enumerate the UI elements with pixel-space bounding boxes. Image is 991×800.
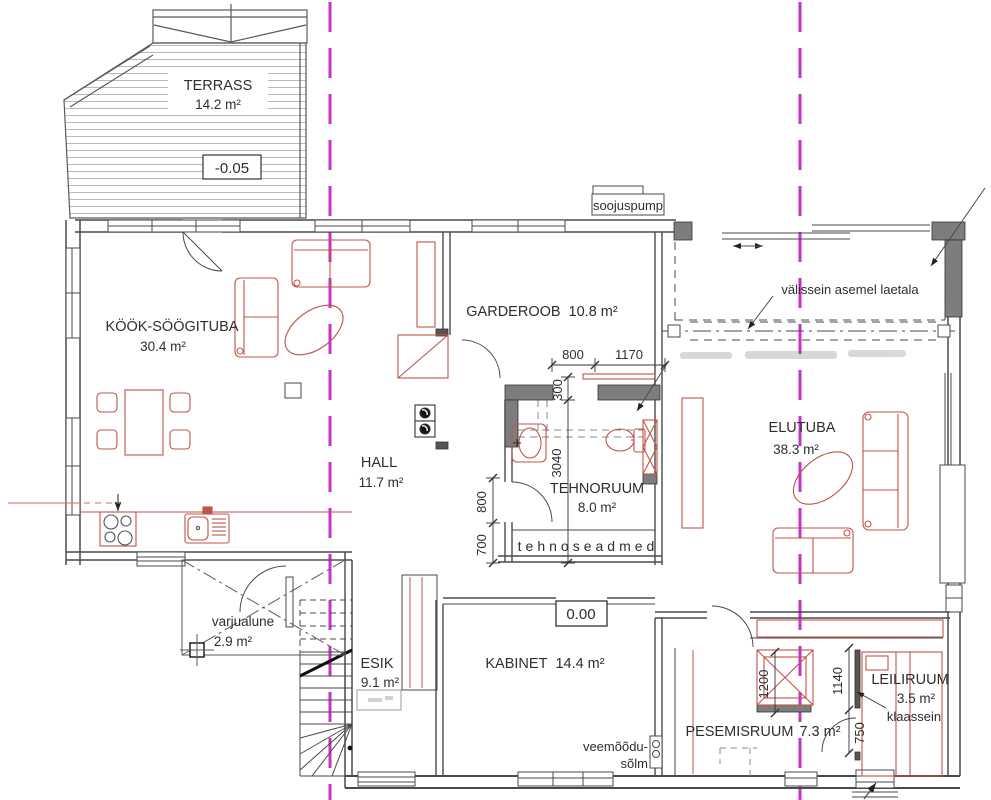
label-esik-area: 9.1 m² [361,675,400,690]
wc-toilet [606,429,645,452]
floor-plan-page: TERRASS 14.2 m² -0.05 soojuspump KÖÖK-SÖ… [0,0,991,800]
dim-label-1140: 1140 [830,667,845,695]
window-top-2 [315,220,410,232]
illegible-label-box [357,690,401,710]
sliding-door-panels [722,225,930,246]
sofa-right [863,412,908,530]
garderoob-shelf [583,374,655,379]
window-under-counter [137,552,185,566]
glass-wall-klaassein [855,650,860,708]
door-pesemisruum [712,606,753,647]
esik-wardrobe [402,575,437,690]
spotlight-symbols [415,405,435,437]
chair [170,430,190,449]
beam-anchor-right [938,325,950,337]
label-valissein: välissein asemel laetala [781,282,919,297]
wall-wc-left-top [505,385,553,400]
window-left-1 [66,248,80,338]
label-garderoob: GARDEROOB10.8 m² [466,304,618,320]
label-kook-area: 30.4 m² [140,339,186,354]
terrace-deck [64,43,306,218]
label-veemoodu-1: veemõõdu- [583,739,648,754]
door-tehnoruum [512,482,552,522]
dim-label-750: 750 [852,722,867,744]
label-soojuspump: soojuspump [593,198,663,213]
dining-table [125,390,163,455]
leader-laetala [748,296,773,329]
hall-hatch-bottom [436,442,448,449]
wall-wc-right [598,385,660,400]
dim-label-3040: 3040 [549,449,564,478]
label-varjualune: varjualune [212,614,274,629]
window-top-3 [472,220,565,232]
window-bottom-kabinet [518,772,613,786]
erased-text-smudge [680,350,906,359]
dim-label-300: 300 [550,379,565,401]
label-hall: HALL [361,455,397,471]
kitchen-fixtures [8,494,352,546]
bench-red-long [757,620,943,637]
door-varjualune [240,566,286,612]
elutuba-top-structure [637,188,985,411]
dim-label-1170: 1170 [615,347,643,362]
window-bottom-pesemisruum [785,772,817,786]
water-meter [650,736,662,768]
dim-label-800h: 800 [562,347,584,362]
rug-oval [276,295,352,365]
label-leiliruum-area: 3.5 m² [897,691,936,706]
window-top-1 [108,220,240,232]
wall-wc-small [643,474,657,484]
leader-klaassein [857,692,886,708]
dim-label-1200: 1200 [756,670,771,699]
window-left-2 [66,418,80,515]
chair [97,430,117,449]
label-terrass-area: 14.2 m² [195,97,241,112]
terrace [64,4,307,218]
tv-bench [682,398,703,528]
label-veemoodu-2: sõlm [621,756,648,771]
shower-curb [757,705,811,712]
label-pesemisruum: PESEMISRUUM7.3 m² [685,724,840,740]
label-klaassein: klaassein [887,709,941,724]
chair [170,393,190,412]
hall-shelf [417,242,435,327]
furniture-hall [285,242,448,437]
stair-cut-line [300,650,352,676]
dim-label-800v: 800 [474,491,489,513]
wall-corner-tr-vert [945,240,962,317]
dimensions [486,358,886,757]
label-tehnoruum-area: 8.0 m² [578,500,617,515]
dim-label-700: 700 [474,534,489,556]
chair [97,393,117,412]
sofa-vertical [235,278,278,357]
door-garderoob [462,340,500,378]
floor-plan-drawing: TERRASS 14.2 m² -0.05 soojuspump KÖÖK-SÖ… [0,0,991,800]
label-tehnoseadmed: tehnoseadmed [518,538,659,554]
stove [100,494,136,546]
sauna-exterior-door-steps [852,770,898,799]
window-bottom-esik [358,772,415,786]
label-tehnoruum: TEHNORUUM [550,481,644,497]
label-esik: ESIK [360,656,393,672]
label-floor-elev: 0.00 [566,606,595,623]
axis-lines [330,2,800,800]
sofa-bottom [773,528,853,573]
label-kook: KÖÖK-SÖÖGITUBA [106,317,239,335]
label-kabinet: KABINET14.4 m² [485,656,604,672]
label-elutuba-area: 38.3 m² [773,442,819,457]
hall-stool [285,383,301,398]
label-elutuba: ELUTUBA [769,420,836,436]
label-hall-area: 11.7 m² [359,475,404,490]
hall-cabinet-diagonal [398,335,448,378]
label-varjualune-area: 2.9 m² [214,634,253,649]
label-terrass: TERRASS [184,78,253,94]
beam-anchor-left [668,325,680,337]
terrace-awning [153,4,307,43]
label-terrass-elev: -0.05 [215,160,249,177]
window-right-bay [940,373,965,612]
glass-wall-stub [855,752,860,760]
label-leiliruum: LEILIRUUM [871,672,948,688]
pillar-soojuspump [674,222,692,240]
door-varjualune-frame [286,577,293,627]
